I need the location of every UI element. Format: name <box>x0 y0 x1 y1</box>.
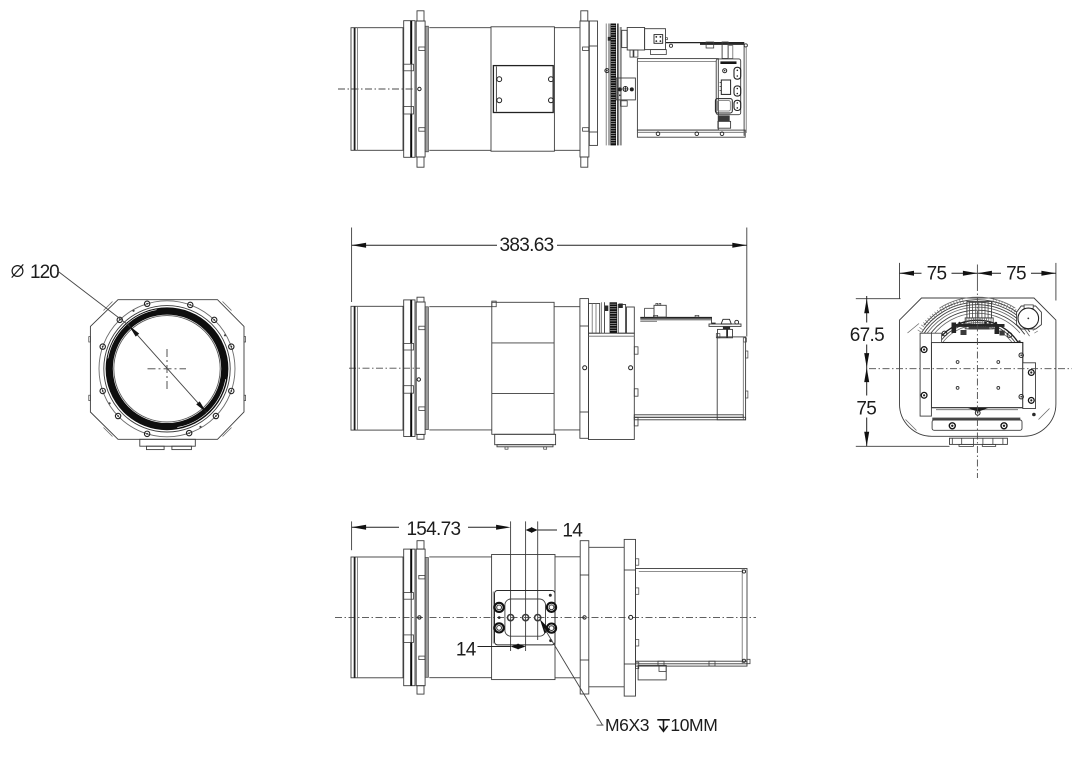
svg-text:120: 120 <box>30 262 59 283</box>
svg-text:75: 75 <box>1006 264 1026 285</box>
svg-text:14: 14 <box>562 521 583 542</box>
svg-text:10MM: 10MM <box>670 715 717 735</box>
svg-text:154.73: 154.73 <box>406 519 460 540</box>
svg-text:75: 75 <box>927 264 947 285</box>
svg-text:M6X3: M6X3 <box>605 715 649 735</box>
svg-text:383.63: 383.63 <box>500 235 554 256</box>
svg-text:75: 75 <box>856 399 876 420</box>
svg-text:67.5: 67.5 <box>850 325 884 346</box>
svg-text:14: 14 <box>456 639 477 660</box>
